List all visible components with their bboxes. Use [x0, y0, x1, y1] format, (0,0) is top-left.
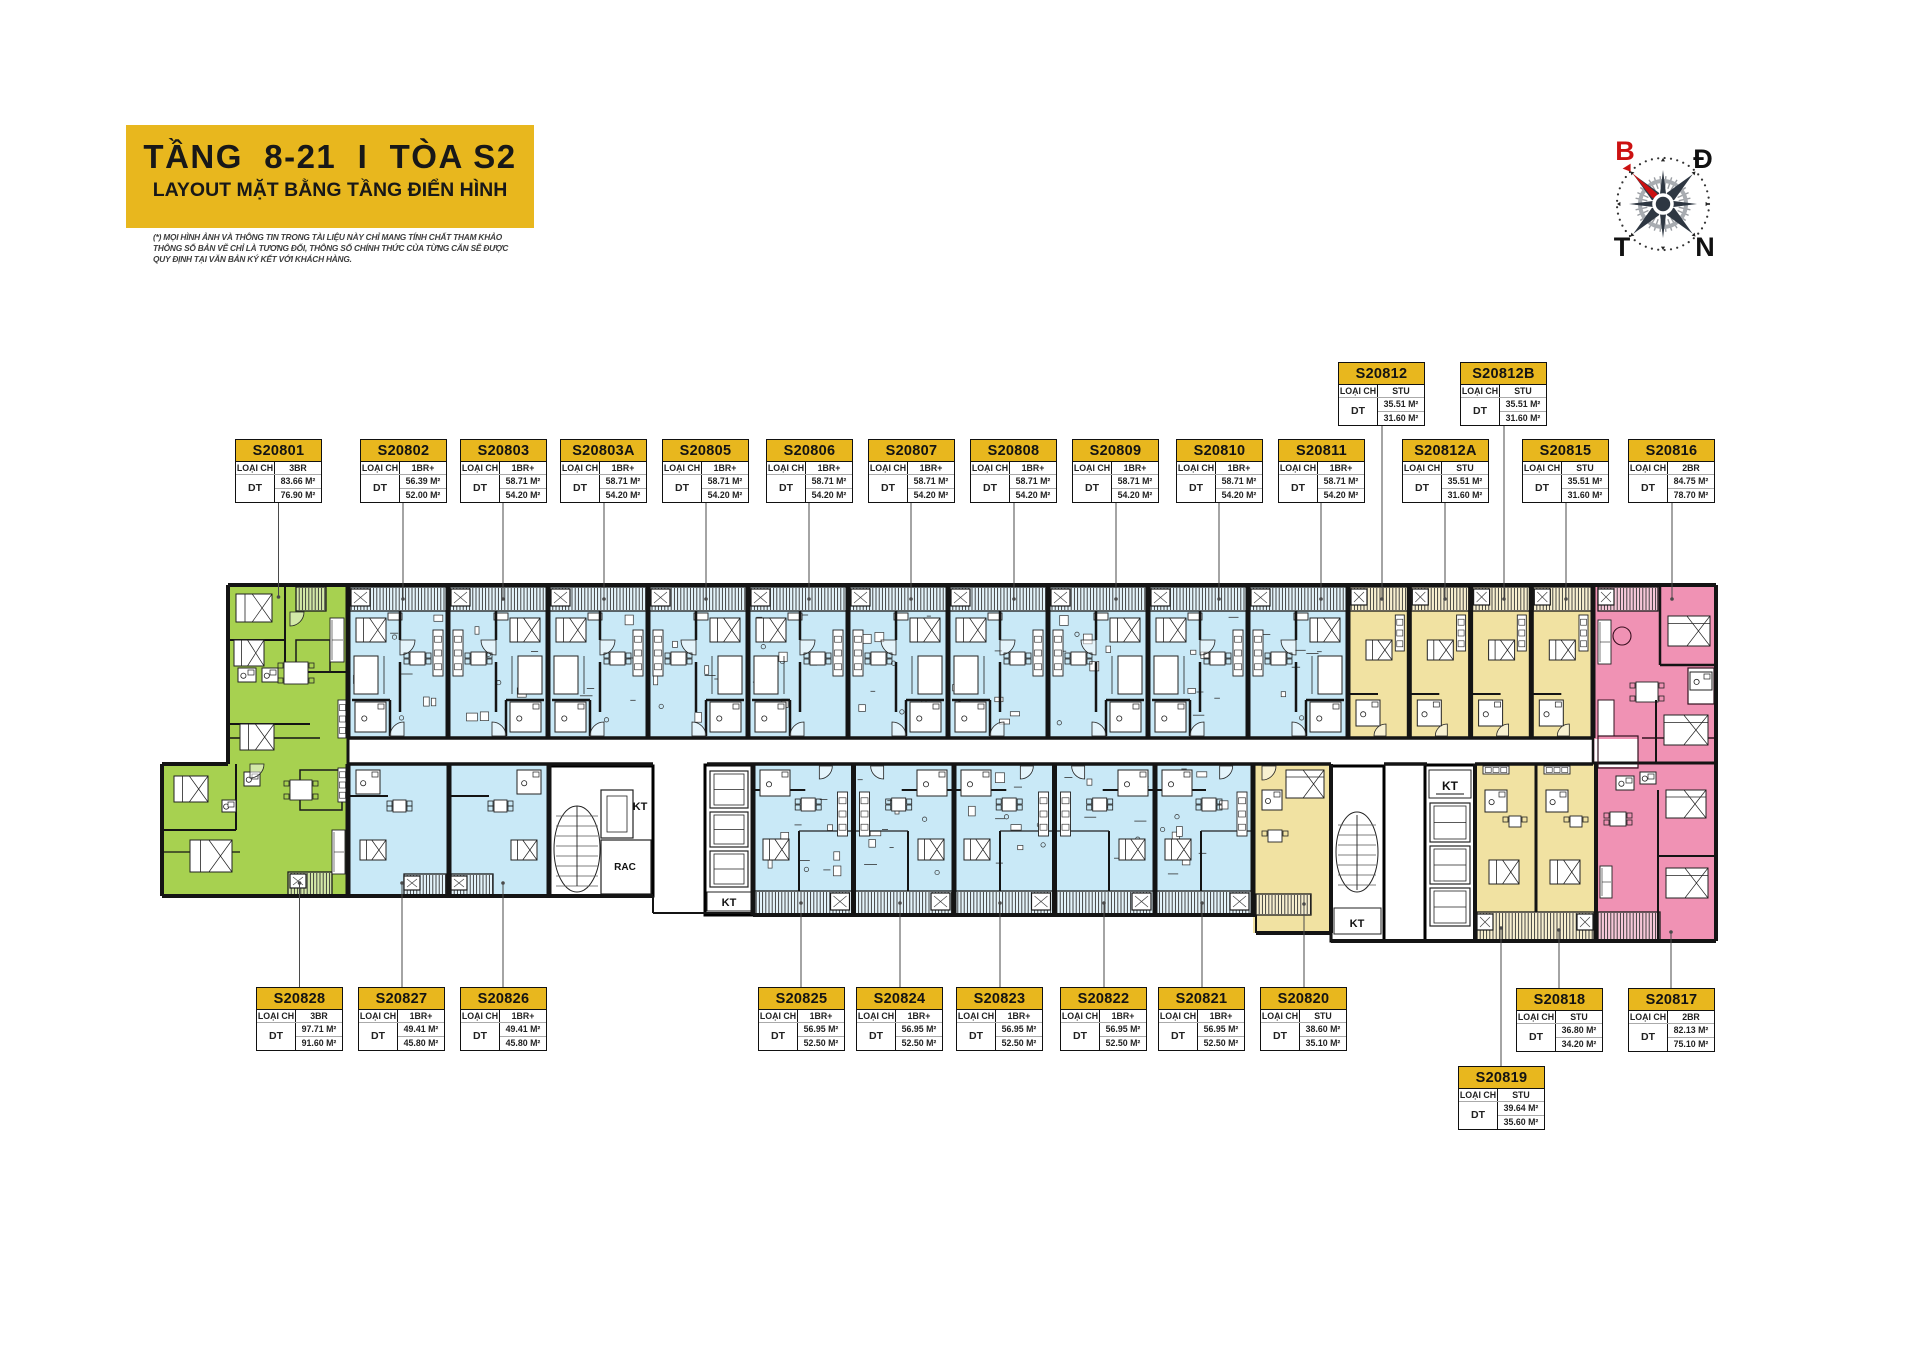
svg-text:Đ: Đ	[1693, 144, 1713, 174]
svg-text:B: B	[1615, 136, 1635, 166]
svg-text:T: T	[1614, 232, 1631, 262]
svg-text:KT: KT	[1350, 918, 1365, 930]
svg-text:N: N	[1695, 232, 1715, 262]
svg-text:KT: KT	[1442, 779, 1459, 793]
svg-text:KT: KT	[633, 801, 648, 813]
svg-text:RAC: RAC	[614, 862, 636, 873]
svg-text:KT: KT	[722, 897, 737, 909]
